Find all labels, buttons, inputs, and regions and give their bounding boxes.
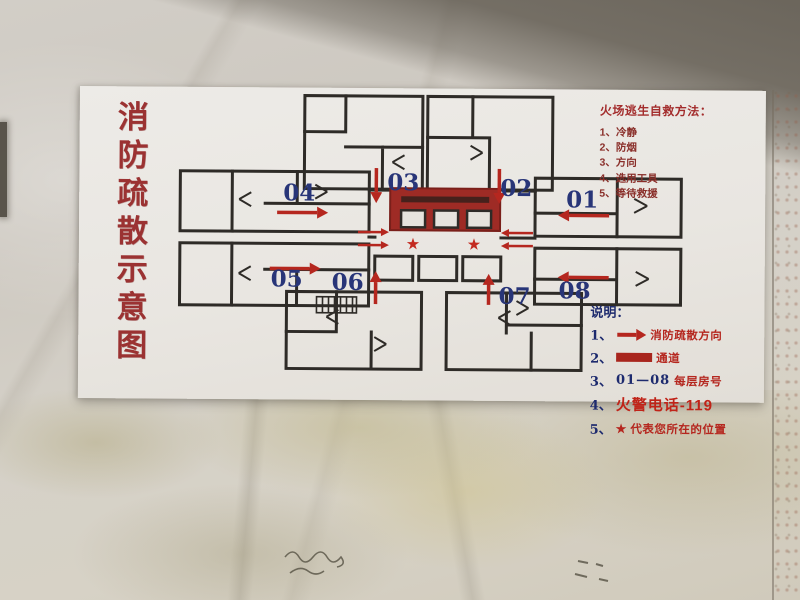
escape-guide-title: 火场逃生自救方法： — [600, 102, 762, 120]
room-label-06: 06 — [332, 269, 364, 296]
legend-star-icon: ★ — [616, 421, 627, 435]
escape-guide-list: 1、冷静 2、防烟 3、方向 4、选用工具 5、等待救援 — [599, 126, 762, 203]
wall-edge-dark-strip — [0, 122, 7, 217]
escape-item-1: 1、冷静 — [600, 126, 762, 142]
evac-arrow-room03-down — [370, 168, 382, 203]
room-label-03: 03 — [387, 169, 419, 196]
room-label-08: 08 — [558, 277, 590, 304]
legend-corridor-swatch — [616, 353, 652, 362]
room-label-05: 05 — [271, 265, 303, 292]
you-are-here-star-right: ★ — [467, 235, 481, 254]
legend-row-room-numbers: 3、 01—08 每层房号 — [590, 371, 764, 391]
you-are-here-star-left: ★ — [406, 234, 420, 253]
escape-item-5: 5、等待救援 — [599, 187, 761, 203]
escape-item-2: 2、防烟 — [600, 141, 762, 157]
legend-row-location: 5、 ★ 代表您所在的位置 — [590, 419, 764, 439]
legend-row-corridor: 2、 通道 — [590, 348, 764, 368]
room-label-07: 07 — [498, 283, 530, 310]
wall-scribbles — [270, 535, 690, 595]
photo-of-fire-evacuation-sign: 消防疏散示意图 — [0, 0, 800, 600]
escape-item-3: 3、方向 — [599, 156, 761, 172]
legend-row-direction: 1、 消防疏散方向 — [590, 325, 764, 345]
evac-arrow-room04-right — [277, 206, 328, 218]
legend-room-range: 01—08 — [616, 373, 670, 388]
legend-num-4: 4、 — [590, 395, 612, 414]
legend: 说明： 1、 消防疏散方向 2、 通道 3、 01—08 每层房号 4、 — [590, 302, 765, 439]
legend-text-direction: 消防疏散方向 — [650, 326, 722, 343]
room-label-04: 04 — [283, 179, 315, 206]
legend-text-fire-phone: 火警电话-119 — [616, 394, 713, 416]
sign-title-vertical: 消防疏散示意图 — [106, 100, 153, 390]
marble-speckles — [774, 90, 800, 600]
escape-item-4: 4、选用工具 — [599, 171, 761, 187]
legend-title: 说明： — [590, 302, 764, 322]
legend-num-1: 1、 — [590, 325, 612, 344]
evac-arrow-room07-up — [482, 274, 494, 305]
legend-num-3: 3、 — [590, 371, 612, 390]
legend-evac-arrow-icon — [616, 328, 646, 340]
legend-text-corridor: 通道 — [656, 350, 680, 366]
room-label-02: 02 — [500, 175, 532, 202]
legend-text-location: 代表您所在的位置 — [630, 420, 726, 437]
evacuation-sign-board: 消防疏散示意图 — [78, 86, 766, 403]
escape-guide: 火场逃生自救方法： 1、冷静 2、防烟 3、方向 4、选用工具 5、等待救援 — [599, 102, 762, 203]
legend-num-5: 5、 — [590, 419, 612, 438]
legend-text-room-numbers: 每层房号 — [674, 373, 722, 389]
room-label-01: 01 — [566, 186, 598, 213]
legend-num-2: 2、 — [590, 348, 612, 367]
legend-row-fire-phone: 4、 火警电话-119 — [590, 394, 764, 416]
evac-arrow-room06-up — [369, 271, 381, 304]
